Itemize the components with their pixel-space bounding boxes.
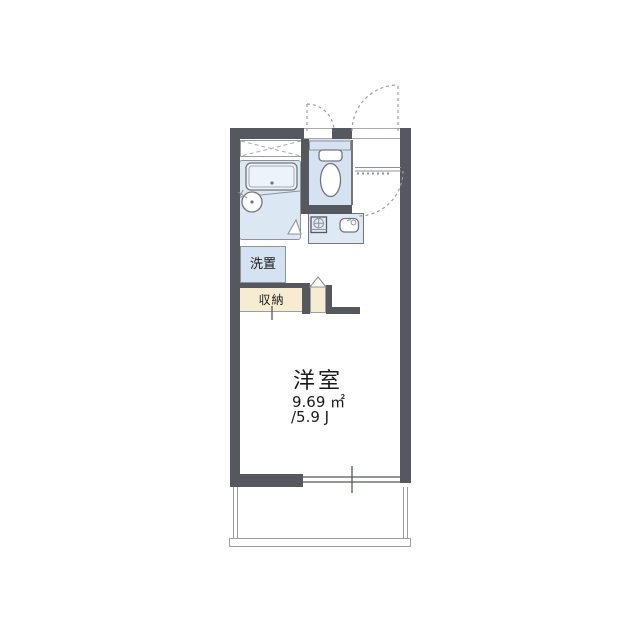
entrance-door-opening: [352, 128, 400, 139]
wall-bottom-left-segment: [230, 474, 303, 487]
wall-storage-divider: [302, 283, 310, 314]
washer-space-label: 洗置: [250, 258, 276, 271]
door-pocket-box: [310, 285, 326, 313]
kitchen-counter: [308, 213, 364, 244]
storage-label: 収納: [258, 294, 284, 306]
interior-door-swing-arc-icon: [358, 171, 403, 216]
entrance-door-swing-arc-icon: [352, 85, 398, 131]
wall-top-left-segment: [230, 128, 304, 139]
storage-closet-box: 収納: [240, 288, 303, 312]
main-room-area-tatami-text: /5.9 J: [291, 408, 329, 426]
toilet-room: [309, 139, 351, 205]
wall-left: [230, 128, 240, 487]
wall-bath-toilet-divider: [301, 139, 309, 214]
balcony-rail-right: [403, 487, 408, 538]
washer-space-box: 洗置: [240, 246, 286, 283]
wall-right: [400, 128, 411, 483]
bathroom-unit: [239, 160, 301, 240]
wall-toilet-bottom: [301, 205, 352, 214]
service-door-opening: [304, 128, 332, 139]
main-room-area-tatami: /5.9 J: [291, 408, 361, 426]
sliding-window-icon: [303, 477, 402, 482]
balcony-rail-left: [233, 487, 238, 538]
balcony-rail-bottom: [229, 538, 411, 547]
floorplan-canvas: 洗置 収納: [0, 0, 640, 640]
wall-toilet-right-thin: [351, 140, 353, 205]
entry-step-line: [355, 168, 401, 172]
wall-storage-top: [240, 283, 310, 288]
wall-top-mid-segment: [332, 128, 352, 139]
service-door-swing-arc-icon: [307, 104, 334, 131]
wall-room-partition-stub: [326, 307, 360, 314]
crossed-area-icon: [240, 140, 302, 157]
